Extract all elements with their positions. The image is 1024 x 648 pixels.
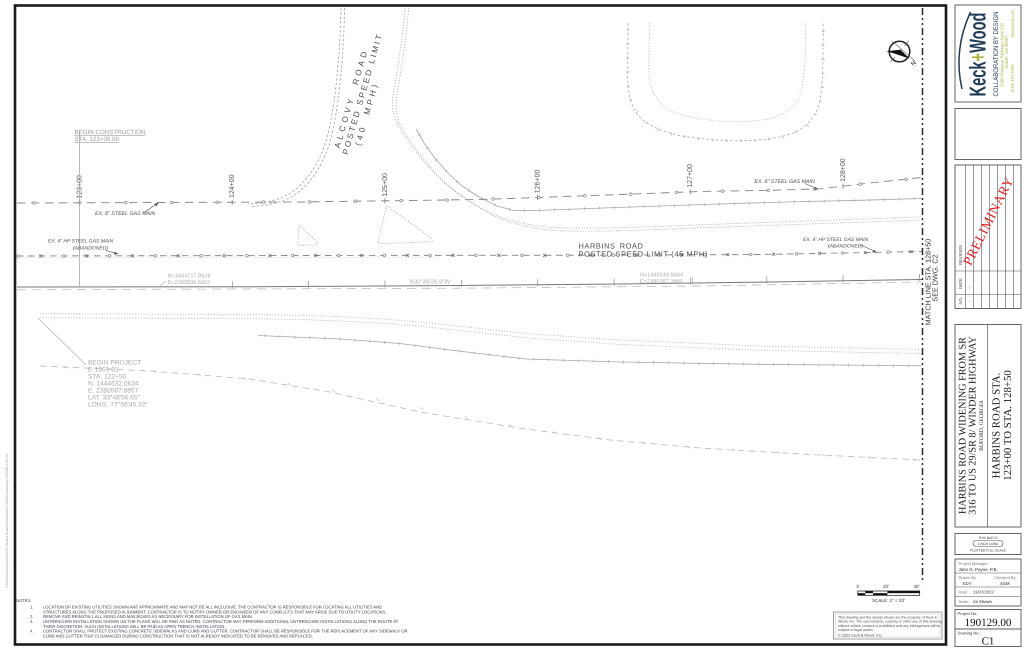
svg-text:BUFORD, GEORGIA: BUFORD, GEORGIA xyxy=(979,400,985,451)
svg-text:BEGIN PROJECT: BEGIN PROJECT xyxy=(88,360,141,367)
svg-text:N=1445018.5664: N=1445018.5664 xyxy=(640,273,683,279)
svg-text:EX. 4" HP STEEL GAS MAIN: EX. 4" HP STEEL GAS MAIN xyxy=(803,237,869,243)
svg-text:(ABANDONED): (ABANDONED) xyxy=(73,245,108,251)
svg-text:As Shown: As Shown xyxy=(973,599,993,604)
svg-text:PLOTTED FULL SCALE: PLOTTED FULL SCALE xyxy=(970,549,1007,553)
svg-text:123+00 TO STA. 128+50: 123+00 TO STA. 128+50 xyxy=(1002,370,1014,481)
svg-text:1.: 1. xyxy=(30,605,33,610)
svg-text:SCALE: 1″ = 20′: SCALE: 1″ = 20′ xyxy=(872,598,905,603)
svg-text:S:\Gwinnett County\190129.00 H: S:\Gwinnett County\190129.00 Harbins Roa… xyxy=(5,454,9,588)
svg-text:Duluth, GA 30097: Duluth, GA 30097 xyxy=(1004,35,1009,68)
svg-text:E=2380538.6402: E=2380538.6402 xyxy=(168,280,211,286)
svg-text:Drawing No.:: Drawing No.: xyxy=(958,631,981,636)
svg-text:LONG. 77°58′45.32″: LONG. 77°58′45.32″ xyxy=(88,402,148,409)
svg-text:11/07/2022: 11/07/2022 xyxy=(973,590,994,595)
svg-text:N. 1444632.0634: N. 1444632.0634 xyxy=(88,381,139,388)
svg-text:SEE DWG. C2: SEE DWG. C2 xyxy=(931,254,940,301)
svg-text:127+00: 127+00 xyxy=(687,164,694,188)
svg-text:CURB AND GUTTER THAT IS DAMAGE: CURB AND GUTTER THAT IS DAMAGED DURING C… xyxy=(43,633,313,638)
svg-text:3.: 3. xyxy=(30,619,33,624)
svg-text:BEGIN CONSTRUCTION: BEGIN CONSTRUCTION xyxy=(75,129,146,136)
svg-text:DATE: DATE xyxy=(958,278,963,289)
svg-text:C1: C1 xyxy=(982,636,995,648)
svg-text:190129.00: 190129.00 xyxy=(965,617,1012,629)
svg-text:NOTES:: NOTES: xyxy=(16,598,31,603)
svg-text:subject to legal action.: subject to legal action. xyxy=(838,628,874,632)
svg-text:E=2380357.3880: E=2380357.3880 xyxy=(640,279,683,285)
svg-text:E-1361-01: E-1361-01 xyxy=(88,367,119,374)
svg-text:Project Manager:: Project Manager: xyxy=(959,561,989,566)
svg-text:Project No.:: Project No.: xyxy=(958,611,979,616)
svg-text:THIS BAR IS: THIS BAR IS xyxy=(978,536,998,540)
svg-text:(ABANDONED): (ABANDONED) xyxy=(828,244,863,250)
svg-text:HARBINS ROAD STA.: HARBINS ROAD STA. xyxy=(991,373,1003,479)
svg-text:Scale:: Scale: xyxy=(959,599,970,604)
svg-text:Drawn By:: Drawn By: xyxy=(959,575,977,580)
svg-text:126+00: 126+00 xyxy=(535,170,542,194)
svg-text:Keck+Wood: Keck+Wood xyxy=(965,13,991,97)
svg-text:N=1444717.9528: N=1444717.9528 xyxy=(168,274,211,280)
svg-text:316 TO US 29/SR 8/ WINDER HIGH: 316 TO US 29/SR 8/ WINDER HIGHWAY xyxy=(968,336,979,515)
svg-text:N30°48′26.9″W: N30°48′26.9″W xyxy=(410,279,451,286)
svg-text:John G. Payne, P.E.: John G. Payne, P.E. xyxy=(959,567,998,572)
svg-text:EX. 8" STEEL GAS MAIN: EX. 8" STEEL GAS MAIN xyxy=(95,211,156,217)
svg-text:0: 0 xyxy=(857,584,860,589)
svg-text:POSTED SPEED LIMIT (45 MPH): POSTED SPEED LIMIT (45 MPH) xyxy=(579,250,709,259)
svg-text:E. 2380587.8857: E. 2380587.8857 xyxy=(88,388,139,395)
svg-text:128+00: 128+00 xyxy=(840,158,847,182)
svg-text:124+00: 124+00 xyxy=(229,174,236,198)
svg-text:STA. 123+00.00: STA. 123+00.00 xyxy=(75,136,120,143)
svg-text:keckwood.com: keckwood.com xyxy=(1010,10,1015,37)
svg-text:NO.: NO. xyxy=(958,297,963,304)
svg-text:STA. 122+50: STA. 122+50 xyxy=(88,374,127,381)
svg-text:(678) 417-4000: (678) 417-4000 xyxy=(1010,64,1015,92)
svg-text:40′: 40′ xyxy=(914,584,920,589)
svg-text:LAT. 33°48′56.65″: LAT. 33°48′56.65″ xyxy=(88,395,141,402)
svg-text:Checked By:: Checked By: xyxy=(994,575,1017,580)
svg-text:125+00: 125+00 xyxy=(382,173,389,197)
svg-text:© 2022 Keck & Wood, Inc.: © 2022 Keck & Wood, Inc. xyxy=(838,634,883,638)
svg-text:EDY: EDY xyxy=(963,581,972,586)
svg-text:Date:: Date: xyxy=(959,590,969,595)
svg-text:AGM: AGM xyxy=(1000,581,1010,586)
svg-text:EX. 4" HP STEEL GAS MAIN: EX. 4" HP STEEL GAS MAIN xyxy=(48,239,114,245)
svg-text:20′: 20′ xyxy=(883,584,889,589)
svg-text:4.: 4. xyxy=(30,629,33,634)
svg-text:1 INCH LONG: 1 INCH LONG xyxy=(977,542,999,546)
